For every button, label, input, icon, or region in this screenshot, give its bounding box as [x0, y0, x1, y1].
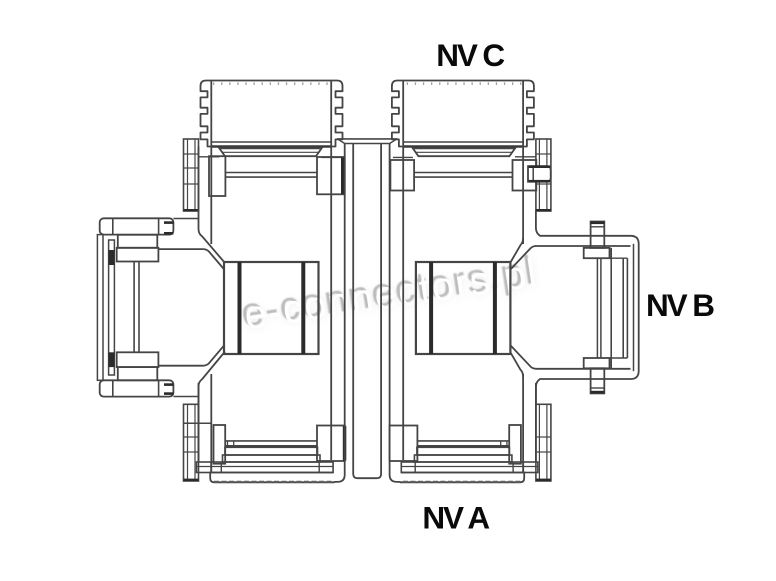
svg-text:NV B: NV B: [646, 287, 714, 323]
svg-text:NV A: NV A: [422, 500, 489, 536]
svg-text:NV C: NV C: [436, 37, 504, 73]
